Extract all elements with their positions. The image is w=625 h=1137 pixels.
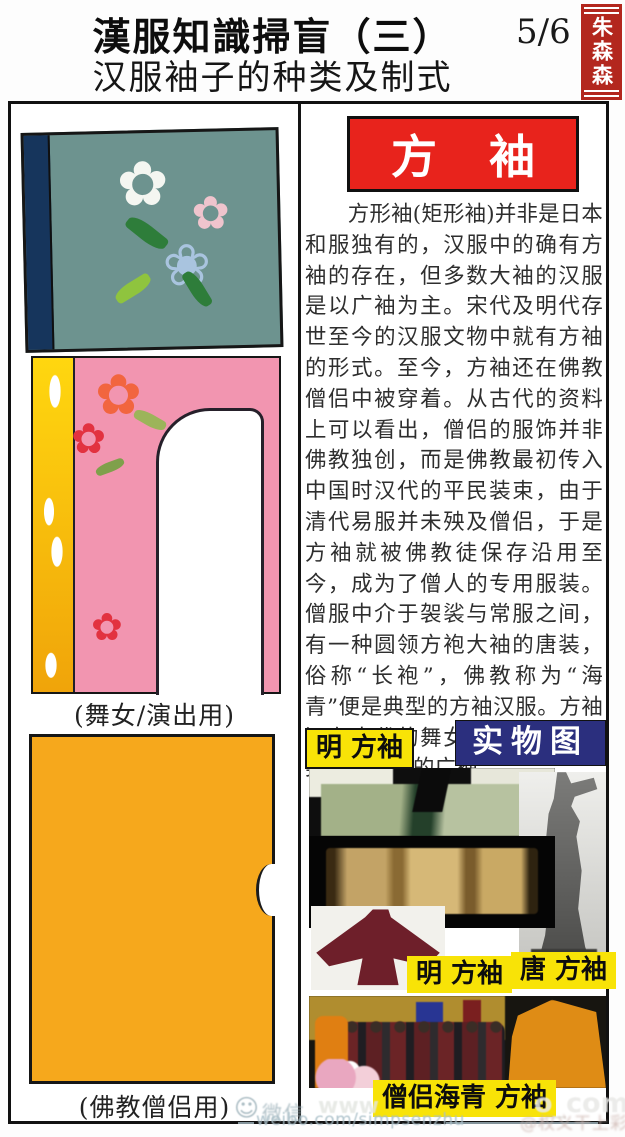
pink-sleeve-yellow-band bbox=[33, 358, 75, 692]
left-column: ✿ ✿ ❀ ✿ ✿ ✿ (舞女/演出用) (佛教僧侣用) bbox=[11, 104, 298, 1121]
author-seal-text: 朱森森 bbox=[587, 16, 617, 88]
author-seal: 朱森森 bbox=[581, 4, 622, 100]
flower-icon: ✿ bbox=[116, 153, 169, 216]
label-monk-haiqing-square-sleeve: 僧侣海青 方袖 bbox=[373, 1080, 556, 1117]
page-number: 5/6 bbox=[516, 12, 571, 52]
hanging-haiqing-robe bbox=[508, 1000, 606, 1088]
label-ming-square-sleeve-top: 明 方袖 bbox=[305, 728, 414, 769]
label-ming-square-sleeve: 明 方袖 bbox=[407, 956, 512, 993]
label-real-photos: 实物图 bbox=[455, 720, 606, 766]
robe-shape bbox=[326, 848, 538, 914]
flower-icon: ✿ bbox=[191, 189, 231, 236]
pink-sleeve-opening bbox=[156, 408, 264, 695]
watermark-line bbox=[238, 1122, 254, 1124]
flower-icon: ✿ bbox=[71, 418, 106, 460]
illustration-teal-sleeve: ✿ ✿ ❀ bbox=[21, 127, 284, 353]
label-tang-square-sleeve: 唐 方袖 bbox=[511, 952, 616, 989]
banner-title: 方 袖 bbox=[373, 121, 553, 187]
body-paragraph: 方形袖(矩形袖)并非是日本和服独有的，汉服中的确有方袖的存在，但多数大袖的汉服是… bbox=[305, 200, 603, 785]
leaf-shape bbox=[132, 406, 167, 433]
section-banner-square-sleeve: 方 袖 bbox=[347, 116, 579, 192]
photo-collage: 明 方袖 唐 方袖 僧侣海青 方袖 bbox=[309, 768, 606, 1118]
content-frame: ✿ ✿ ❀ ✿ ✿ ✿ (舞女/演出用) (佛教僧侣用) bbox=[8, 101, 609, 1124]
infographic-page: 漢服知識掃盲（三） 5/6 朱森森 汉服袖子的种类及制式 ✿ ✿ ❀ ✿ ✿ bbox=[0, 0, 625, 1137]
teal-sleeve-cuff-band bbox=[24, 135, 55, 350]
flower-icon: ✿ bbox=[91, 608, 123, 646]
right-column: 方 袖 方形袖(矩形袖)并非是日本和服独有的，汉服中的确有方袖的存在，但多数大袖… bbox=[301, 104, 606, 1121]
page-subtitle: 汉服袖子的种类及制式 bbox=[0, 50, 545, 99]
leaf-shape bbox=[112, 272, 153, 305]
illustration-pink-dancer-sleeve: ✿ ✿ ✿ bbox=[31, 356, 281, 694]
photo-monk-group bbox=[309, 996, 606, 1088]
watermark-line bbox=[446, 1122, 598, 1124]
orange-sleeve-notch bbox=[256, 864, 275, 916]
caption-dancer-use: (舞女/演出用) bbox=[11, 696, 298, 732]
caption-monk-use: (佛教僧侣用) bbox=[11, 1088, 298, 1124]
illustration-orange-monk-sleeve bbox=[29, 734, 275, 1084]
